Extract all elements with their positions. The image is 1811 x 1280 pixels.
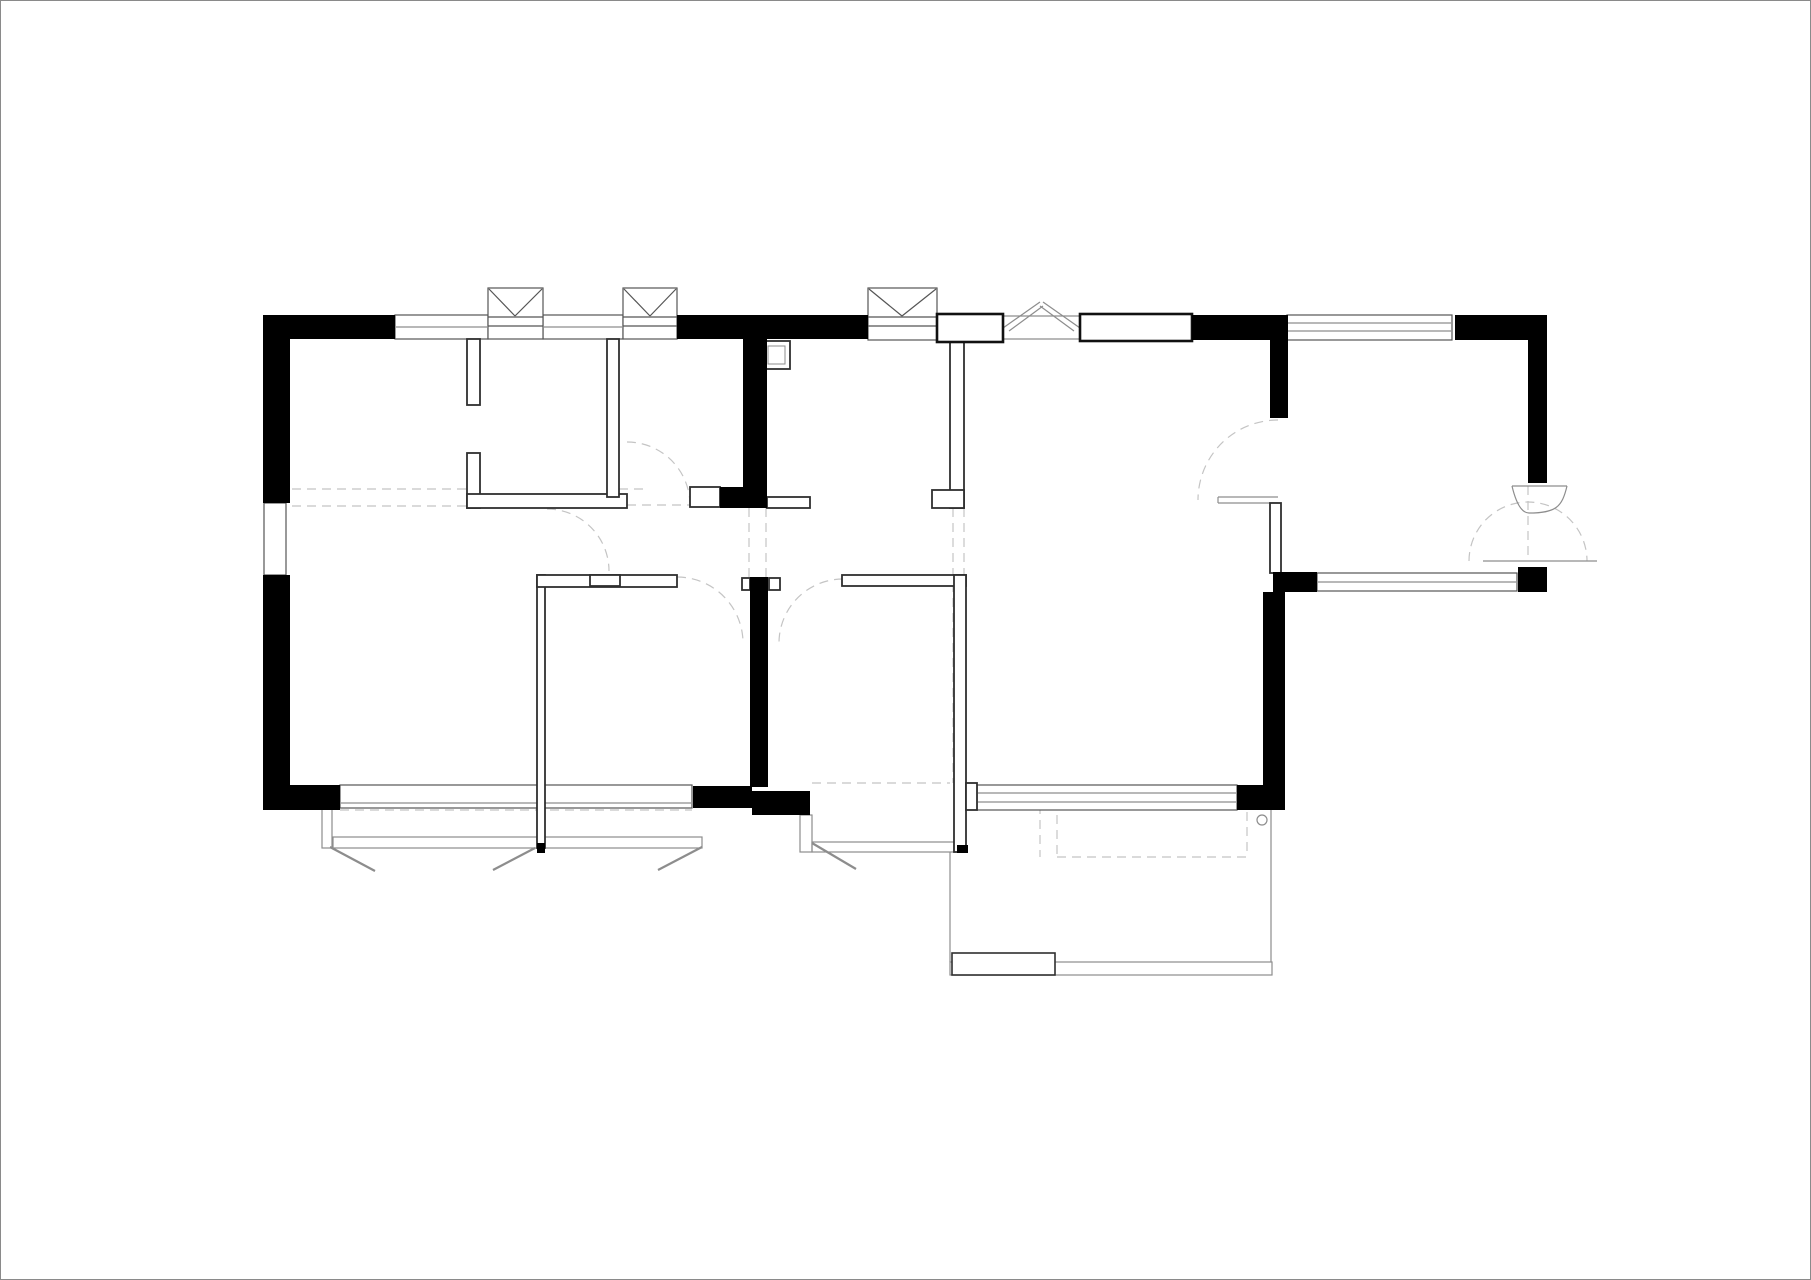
casement-ticks-layer xyxy=(330,843,856,871)
door-swing-arc xyxy=(779,579,843,643)
lintel-bar xyxy=(742,578,750,590)
wall-segment xyxy=(1528,339,1547,483)
wall-segment xyxy=(1237,785,1285,810)
wall-segment xyxy=(1270,339,1288,418)
wall-notch xyxy=(966,783,977,810)
pivot-door-fan xyxy=(1529,486,1567,513)
wall-segment xyxy=(263,785,340,810)
kitchen-wall xyxy=(950,342,964,508)
floor-plan-drawing xyxy=(0,0,1811,1280)
door-swing-arc xyxy=(677,577,743,643)
chevron-opening-icon xyxy=(1043,302,1080,328)
entry-opening xyxy=(1080,314,1192,341)
open-casement-tick xyxy=(493,848,535,870)
entry-door-swing-arc xyxy=(1198,420,1278,500)
wall-segment xyxy=(1263,592,1285,810)
wall-end-cap xyxy=(957,845,968,853)
terrace-planter-box xyxy=(952,953,1055,975)
floor-plan-page xyxy=(0,0,1811,1280)
partition-wall xyxy=(607,339,619,497)
wall-segment xyxy=(1455,315,1547,340)
window-band xyxy=(264,503,286,575)
shaft-box xyxy=(763,341,790,369)
wall-segment xyxy=(263,315,290,503)
chevron-opening-icon xyxy=(1040,306,1074,331)
lintel-bar xyxy=(690,487,720,507)
partition-wall xyxy=(537,575,545,848)
sliding-door-band xyxy=(340,785,692,808)
door-swing-arc xyxy=(627,442,690,505)
wall-segment xyxy=(1192,315,1288,340)
drain-symbol xyxy=(1257,815,1267,825)
balcony-rail xyxy=(812,842,957,852)
partition-wall xyxy=(954,575,966,852)
wall-segment xyxy=(743,338,767,488)
wall-segment xyxy=(1273,572,1317,592)
lintel-bar xyxy=(769,578,780,590)
door-swing-arc xyxy=(547,509,609,571)
sliding-door-band xyxy=(977,785,1237,810)
chevron-opening-icon xyxy=(1009,306,1043,331)
kitchen-wall-foot xyxy=(932,490,964,508)
wall-segment xyxy=(720,487,767,508)
partition-wall xyxy=(467,494,627,508)
open-casement-tick xyxy=(330,847,375,871)
wall-segment xyxy=(1518,567,1547,592)
partition-wall xyxy=(467,339,480,405)
cased-opening xyxy=(937,314,1003,342)
balcony-rail xyxy=(800,815,812,852)
balcony-rail xyxy=(322,806,332,848)
wall-segment xyxy=(750,577,768,787)
wall-segment xyxy=(752,791,810,815)
chevron-opening-icon xyxy=(1003,302,1040,328)
partitions-layer xyxy=(467,339,1281,975)
wall-end-cap xyxy=(537,843,545,853)
windows-layer xyxy=(264,288,1517,810)
window-band xyxy=(1287,315,1452,340)
wall-segment xyxy=(263,575,290,810)
partition-wall xyxy=(1270,503,1281,573)
lintel-bar xyxy=(767,497,810,508)
cased-openings-layer xyxy=(937,314,1192,342)
lintel-bar xyxy=(590,575,620,586)
pivot-door-fan xyxy=(1512,486,1529,513)
wall-segment xyxy=(693,786,752,808)
open-door-leaf-tick xyxy=(812,843,856,869)
partition-wall xyxy=(842,575,966,586)
balcony-rail xyxy=(333,837,702,848)
wall-segment xyxy=(677,315,868,339)
open-casement-tick xyxy=(658,847,702,870)
